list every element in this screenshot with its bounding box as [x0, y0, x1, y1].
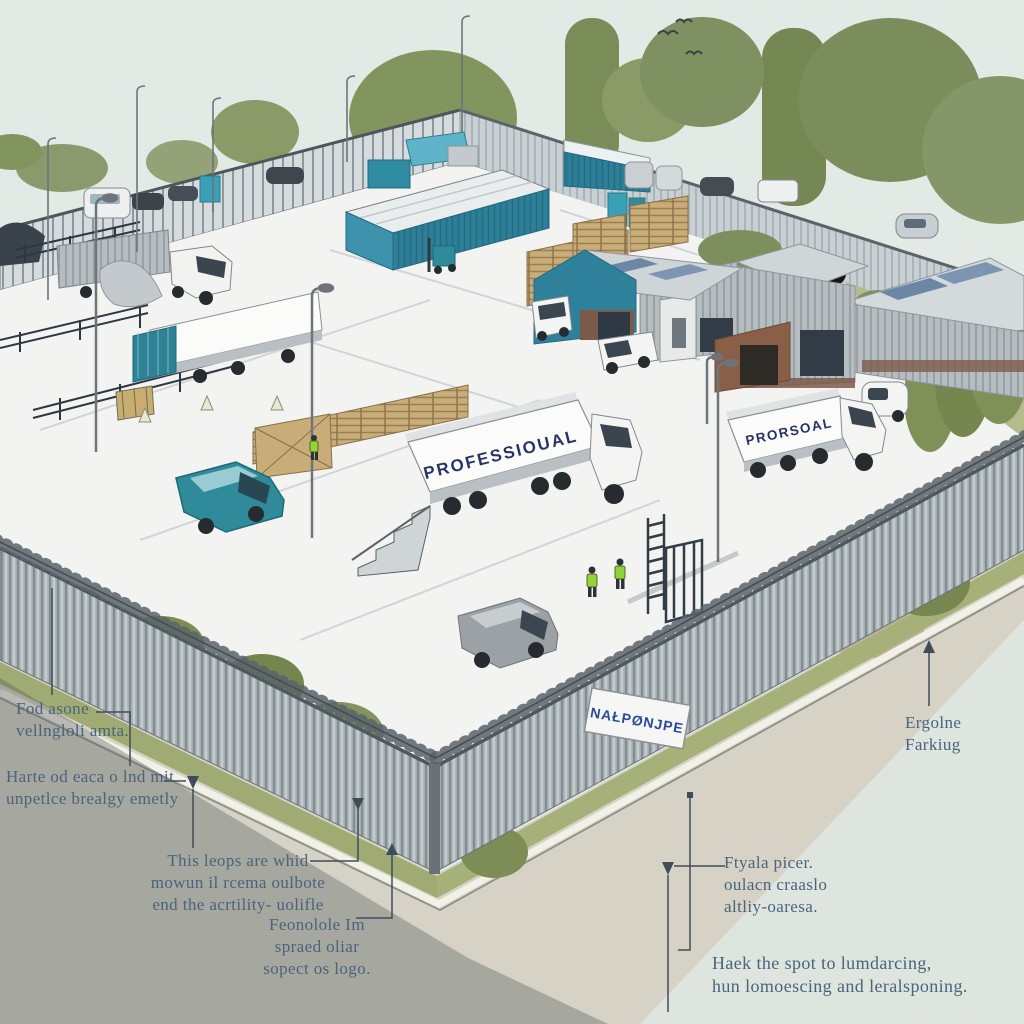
annotation-engine-parking: Ergolne Farkiug: [905, 712, 961, 756]
annotation-line: Ftyala picer.: [724, 852, 827, 874]
portable-toilet: [200, 176, 220, 202]
industrial-yard-illustration: PROFESSIOUAL PRORSOAL: [0, 0, 1024, 1024]
annotation-line: Farkiug: [905, 734, 961, 756]
annotation-secure-entry: Harte od eaca o lnd mit unpetlce brealgy…: [6, 766, 179, 810]
annotation-vehicle-units: Fod asone vellngloli amta.: [16, 698, 129, 742]
annotation-line: This leops are whid: [128, 850, 348, 872]
annotation-line: end the acrtility- uolifle: [128, 894, 348, 916]
annotation-mown-areas: This leops are whid mowun il rcema oulbo…: [128, 850, 348, 915]
container-rounded: [656, 166, 682, 190]
garage-opening: [740, 345, 778, 385]
dark-car: [168, 186, 198, 201]
dark-car: [700, 177, 734, 196]
diamond-marker-icon: [687, 792, 693, 798]
annotation-line: sopect os logo.: [252, 958, 382, 980]
annotation-landscaping: Haek the spot to lumdarcing, hun lomoesc…: [712, 952, 968, 998]
pallet-stack: [630, 196, 688, 252]
annotation-line: Ergolne: [905, 712, 961, 734]
annotation-line: oulacn craaslo: [724, 874, 827, 896]
annotation-line: mowun il rcema oulbote: [128, 872, 348, 894]
annotation-line: unpetlce brealgy emetly: [6, 788, 179, 810]
container-teal: [368, 160, 410, 188]
annotation-line: vellngloli amta.: [16, 720, 129, 742]
corner-post: [429, 762, 440, 874]
container-rounded: [625, 162, 653, 188]
annotation-line: altliy-oaresa.: [724, 896, 827, 918]
worker-icon: [310, 435, 318, 460]
annotation-line: Feonolole Im: [252, 914, 382, 936]
annotation-line: Harte od eaca o lnd mit: [6, 766, 179, 788]
annotation-spread-logo: Feonolole Im spraed oliar sopect os logo…: [252, 914, 382, 979]
annotation-line: Haek the spot to lumdarcing,: [712, 952, 968, 975]
loading-door: [800, 330, 844, 376]
annotation-line: hun lomoescing and leralsponing.: [712, 975, 968, 998]
annotation-utility-access: Ftyala picer. oulacn craaslo altliy-oare…: [724, 852, 827, 917]
white-van: [758, 180, 798, 202]
dark-car: [266, 167, 304, 184]
teal-mesh-panel: [133, 326, 176, 382]
container-gray: [448, 146, 478, 166]
annotation-line: Fod asone: [16, 698, 129, 720]
annotation-line: spraed oliar: [252, 936, 382, 958]
